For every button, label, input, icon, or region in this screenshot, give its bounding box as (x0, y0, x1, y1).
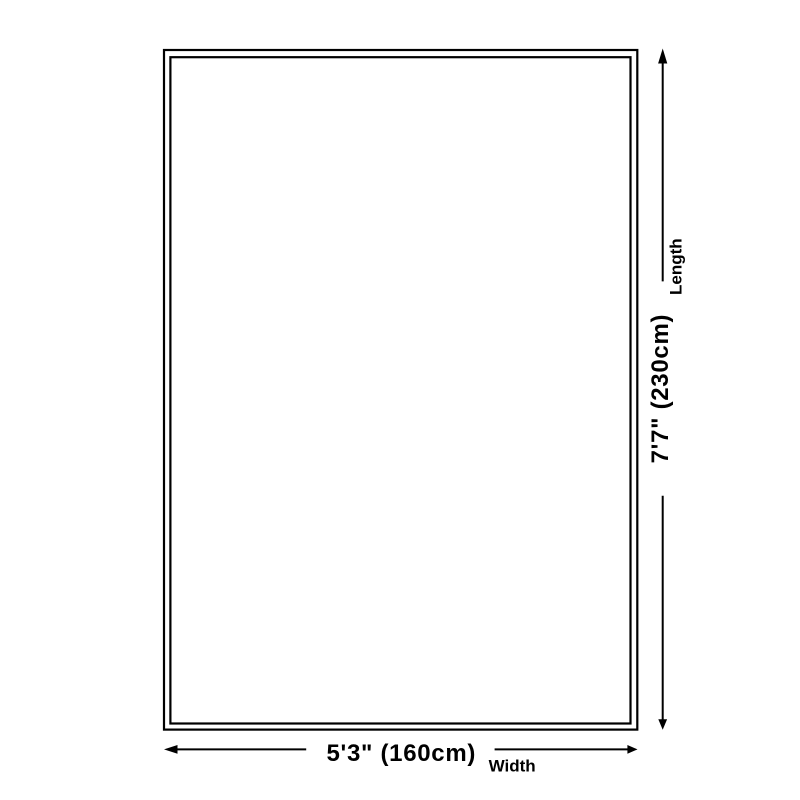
svg-text:Width: Width (489, 756, 536, 775)
svg-text:7'7" (230cm): 7'7" (230cm) (647, 314, 674, 464)
svg-text:5'3" (160cm): 5'3" (160cm) (327, 740, 477, 767)
svg-text:Length: Length (667, 238, 686, 295)
